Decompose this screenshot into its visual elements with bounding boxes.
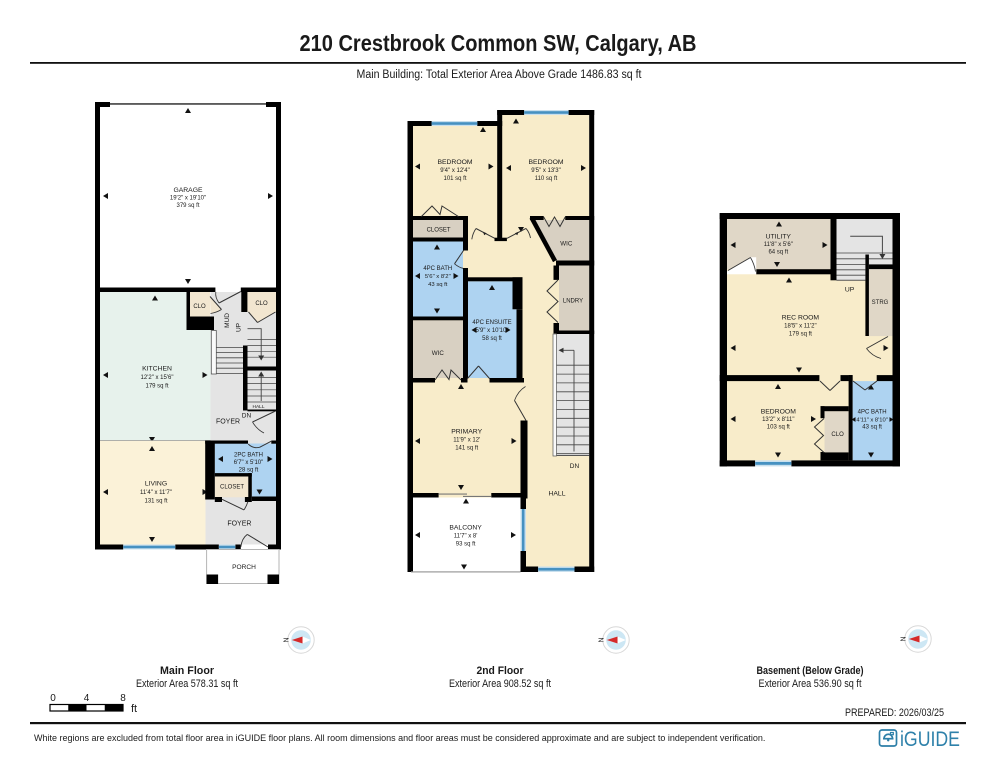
svg-text:WIC: WIC [432, 350, 445, 357]
svg-text:UP: UP [236, 323, 243, 332]
svg-text:KITCHEN: KITCHEN [142, 366, 172, 373]
svg-text:UTILITY: UTILITY [766, 234, 792, 241]
svg-text:18'5" x 11'2": 18'5" x 11'2" [784, 324, 816, 330]
svg-text:141 sq ft: 141 sq ft [455, 446, 478, 452]
svg-text:11'4" x 11'7": 11'4" x 11'7" [140, 490, 172, 496]
svg-text:LNDRY: LNDRY [563, 299, 583, 305]
svg-text:BEDROOM: BEDROOM [761, 409, 796, 416]
svg-text:PRIMARY: PRIMARY [451, 429, 482, 436]
svg-text:110 sq ft: 110 sq ft [535, 176, 558, 182]
svg-text:HALL: HALL [548, 491, 565, 498]
svg-text:179 sq ft: 179 sq ft [145, 384, 168, 390]
svg-text:Main Building: Total Exterior: Main Building: Total Exterior Area Above… [357, 69, 643, 81]
svg-text:CLO: CLO [193, 304, 206, 310]
svg-text:4PC ENSUITE: 4PC ENSUITE [472, 320, 511, 326]
svg-text:64 sq ft: 64 sq ft [768, 250, 788, 256]
svg-text:58 sq ft: 58 sq ft [482, 336, 502, 342]
svg-text:4'11" x 8'10": 4'11" x 8'10" [856, 418, 887, 424]
svg-text:131 sq ft: 131 sq ft [144, 499, 167, 505]
svg-text:43 sq ft: 43 sq ft [862, 425, 882, 431]
svg-text:210 Crestbrook Common SW, Calg: 210 Crestbrook Common SW, Calgary, AB [300, 30, 697, 56]
svg-text:5'6" x 8'2": 5'6" x 8'2" [425, 274, 451, 280]
svg-text:FOYER: FOYER [216, 419, 240, 426]
svg-text:UP: UP [845, 287, 855, 294]
svg-text:93 sq ft: 93 sq ft [456, 542, 476, 548]
svg-text:GARAGE: GARAGE [173, 187, 203, 194]
svg-text:BEDROOM: BEDROOM [528, 159, 563, 166]
svg-text:13'2" x 8'11": 13'2" x 8'11" [762, 417, 794, 423]
svg-text:179 sq ft: 179 sq ft [789, 332, 812, 338]
svg-text:CLO: CLO [831, 432, 844, 438]
svg-text:BEDROOM: BEDROOM [437, 159, 472, 166]
svg-text:HALL: HALL [253, 404, 265, 410]
svg-text:WIC: WIC [560, 241, 573, 248]
svg-text:2nd Floor: 2nd Floor [477, 665, 525, 677]
svg-text:N: N [284, 637, 291, 642]
svg-text:Basement (Below Grade): Basement (Below Grade) [757, 665, 864, 677]
svg-text:STRG: STRG [872, 300, 889, 306]
svg-text:28 sq ft: 28 sq ft [239, 468, 259, 474]
svg-text:9'5" x 13'3": 9'5" x 13'3" [531, 168, 561, 174]
svg-text:4PC BATH: 4PC BATH [858, 410, 887, 416]
svg-text:ft: ft [131, 703, 137, 715]
svg-text:12'2" x 15'6": 12'2" x 15'6" [141, 375, 174, 381]
svg-text:11'9" x 12': 11'9" x 12' [453, 438, 480, 444]
svg-text:43 sq ft: 43 sq ft [428, 282, 448, 288]
svg-text:LIVING: LIVING [145, 481, 167, 488]
svg-text:White regions are excluded fro: White regions are excluded from total fl… [34, 733, 765, 743]
svg-text:8: 8 [120, 693, 126, 704]
svg-text:2PC BATH: 2PC BATH [234, 453, 263, 459]
svg-text:19'2" x 19'10": 19'2" x 19'10" [170, 196, 206, 202]
svg-text:379 sq ft: 379 sq ft [176, 203, 199, 209]
svg-text:N: N [901, 636, 908, 641]
svg-text:Exterior Area 908.52 sq ft: Exterior Area 908.52 sq ft [449, 678, 551, 690]
svg-text:5'9" x 10'10": 5'9" x 10'10" [476, 328, 509, 334]
svg-text:CLOSET: CLOSET [220, 485, 244, 491]
svg-text:PREPARED: 2026/03/25: PREPARED: 2026/03/25 [845, 707, 944, 719]
svg-text:REC ROOM: REC ROOM [782, 315, 820, 322]
svg-text:11'7" x 8': 11'7" x 8' [454, 534, 478, 540]
svg-text:9'4" x 12'4": 9'4" x 12'4" [440, 168, 470, 174]
svg-text:CLO: CLO [255, 301, 268, 307]
svg-text:Exterior Area 536.90 sq ft: Exterior Area 536.90 sq ft [759, 678, 862, 690]
svg-text:iGUIDE: iGUIDE [900, 727, 960, 751]
svg-text:Main Floor: Main Floor [160, 665, 215, 677]
svg-text:PORCH: PORCH [232, 564, 256, 571]
svg-text:0: 0 [50, 693, 56, 704]
svg-text:103 sq ft: 103 sq ft [767, 425, 790, 431]
svg-text:Exterior Area 578.31 sq ft: Exterior Area 578.31 sq ft [136, 678, 238, 690]
svg-text:DN: DN [570, 463, 580, 470]
svg-text:DN: DN [242, 413, 252, 420]
svg-text:4: 4 [84, 693, 90, 704]
svg-text:4PC BATH: 4PC BATH [423, 266, 452, 272]
svg-text:FOYER: FOYER [227, 521, 251, 528]
svg-text:N: N [599, 637, 606, 642]
svg-text:BALCONY: BALCONY [449, 525, 482, 532]
svg-text:CLOSET: CLOSET [427, 228, 451, 234]
svg-text:MUD: MUD [224, 313, 231, 328]
svg-text:6'7" x 5'10": 6'7" x 5'10" [234, 460, 264, 466]
svg-text:101 sq ft: 101 sq ft [443, 176, 466, 182]
svg-text:11'8" x 5'6": 11'8" x 5'6" [764, 242, 793, 248]
